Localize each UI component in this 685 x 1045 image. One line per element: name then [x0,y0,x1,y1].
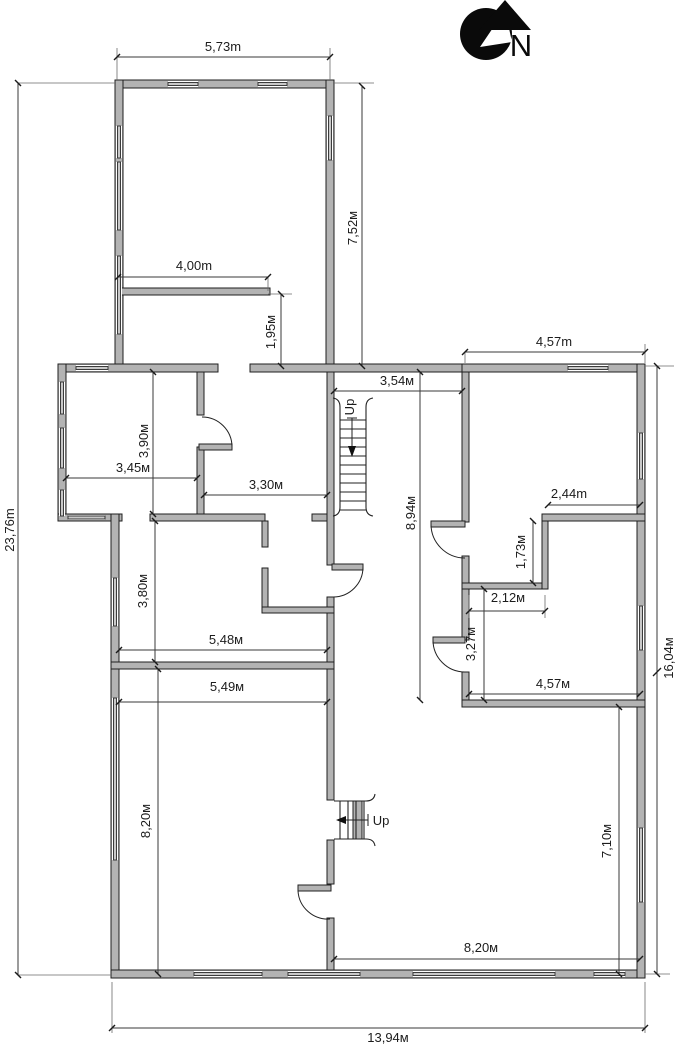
wall-rowA-right [462,364,645,372]
dim-mid-457: 4,57м [469,676,640,694]
stair-treads [340,420,366,510]
dim-label-right-top-width: 4,57m [536,334,572,349]
wall-spine-3 [327,840,334,884]
door-room-left [199,417,232,450]
stair-rail-right [366,398,373,516]
dim-label-room-820-left: 8,20м [138,804,153,838]
stair-up-label-lower: Up [373,813,390,828]
dim-bottom-820: 8,20м [334,940,640,959]
wall-spine-2 [327,597,334,800]
stair-arrow-head [336,816,346,824]
door-leaf [199,444,232,450]
dim-right-top-width: 4,57m [465,334,645,363]
dim-label-top-width: 5,73m [205,39,241,54]
door-spine-upper [332,564,363,597]
dim-label-bottom-820: 8,20м [464,940,498,955]
dim-nook-212: 2,12м [469,590,545,618]
window [288,971,360,977]
window [413,971,555,977]
dim-room-710: 7,10м [599,707,619,974]
staircase-lower: Up [334,794,389,846]
wall-spine-1 [327,372,334,565]
dim-width-549: 5,49м [119,679,327,702]
wall-244-horz [542,514,645,521]
wall-rowA-mid [250,364,465,372]
staircase-upper: Up [333,398,373,516]
door-arc [298,891,330,919]
wall-closet-b [262,568,268,613]
wall-457-mid [462,700,645,707]
stair-rail-top [334,794,375,801]
window [638,433,644,479]
wall-rowB-2 [150,514,265,521]
dim-label-room-330: 3,30м [249,477,283,492]
door-nook [433,637,465,672]
wall-bottom [111,970,645,978]
door-leaf [298,885,331,891]
door-arc [333,567,363,597]
wall-662 [111,662,334,669]
window [59,490,65,516]
wall-spine-4 [327,918,334,970]
window [594,971,625,977]
wall-244-vert [542,521,548,589]
wall-room-b [197,447,204,514]
window [116,162,122,230]
dim-hall-894: 8,94м [403,372,420,700]
window [112,578,118,626]
door-arc [433,640,465,672]
door-arc [431,524,465,558]
dim-total-width: 13,94м [112,982,645,1045]
window [76,365,108,371]
dim-label-room-345: 3,45м [116,460,150,475]
interior-walls [111,288,645,970]
dim-width-548: 5,48м [119,632,327,650]
dim-nook-244: 2,44m [548,486,640,505]
stair-arrow-head [348,446,356,457]
window [59,382,65,414]
dim-label-nook-327: 3,27м [463,627,478,661]
wall-583 [462,583,548,589]
dim-label-wall-400: 4,00m [176,258,212,273]
dim-label-room-390: 3,90м [136,424,151,458]
north-arrow: N [460,0,532,63]
dim-label-width-548: 5,48м [209,632,243,647]
door-leaf [332,564,363,570]
dim-label-total-height: 23,76m [2,508,17,551]
wall-room-a [197,372,204,415]
door-arc [202,417,232,447]
dim-label-nook-212: 2,12м [491,590,525,605]
door-leaf [433,637,465,643]
wall-closet-a [262,521,268,547]
floor-plan: Up Up 5,73m 7,52м [0,0,685,1045]
window [258,81,287,87]
dim-corridor-width: 3,54м [334,373,462,391]
window [116,256,122,334]
door-hall-entry [431,521,465,558]
dim-label-total-width: 13,94м [367,1030,409,1045]
dim-opening-195: 1,95м [263,294,292,366]
dim-room-330: 3,30м [204,477,327,495]
wall-corridor-right-1 [462,372,469,522]
dimensions: 5,73m 7,52м 23,76m 4,00m 1,95м 3,54м [2,39,676,1045]
window [68,515,105,520]
dim-total-height: 23,76m [2,83,115,975]
dim-tower-height: 7,52м [334,83,374,366]
window [168,81,198,87]
dim-label-nook-173: 1,73м [513,535,528,569]
dim-label-room-380: 3,80м [135,574,150,608]
dim-label-corridor-width: 3,54м [380,373,414,388]
dim-label-nook-244: 2,44m [551,486,587,501]
dim-wall-400: 4,00m [118,258,268,291]
wall-400 [118,288,270,295]
dim-right-height: 16,04м [645,366,676,974]
window [194,971,262,977]
wall-closet-c [262,607,334,613]
window [638,828,644,902]
window [327,116,333,160]
dim-room-345: 3,45м [66,460,197,478]
window [59,428,65,468]
window [116,126,122,158]
dim-label-hall-894: 8,94м [403,496,418,530]
dim-label-tower-height: 7,52м [345,211,360,245]
stair-up-label-upper: Up [342,399,357,416]
dim-room-380: 3,80м [135,521,155,662]
wall-tower-top [115,80,334,88]
stair-rail-bottom [334,839,375,846]
window [568,365,608,371]
dim-label-right-height: 16,04м [661,637,676,679]
dim-label-mid-457: 4,57м [536,676,570,691]
door-leaf [431,521,465,527]
north-letter: N [510,28,532,63]
dim-room-390: 3,90м [136,372,153,514]
dim-label-width-549: 5,49м [210,679,244,694]
door-spine-lower [298,885,331,919]
dim-room-820-left: 8,20м [138,669,158,974]
floor-plan-page: Up Up 5,73m 7,52м [0,0,685,1045]
dim-nook-173: 1,73м [513,521,533,583]
dim-top-width: 5,73m [117,39,330,80]
dim-label-opening-195: 1,95м [263,315,278,349]
dim-label-room-710: 7,10м [599,824,614,858]
window [638,606,644,650]
window [112,698,118,860]
